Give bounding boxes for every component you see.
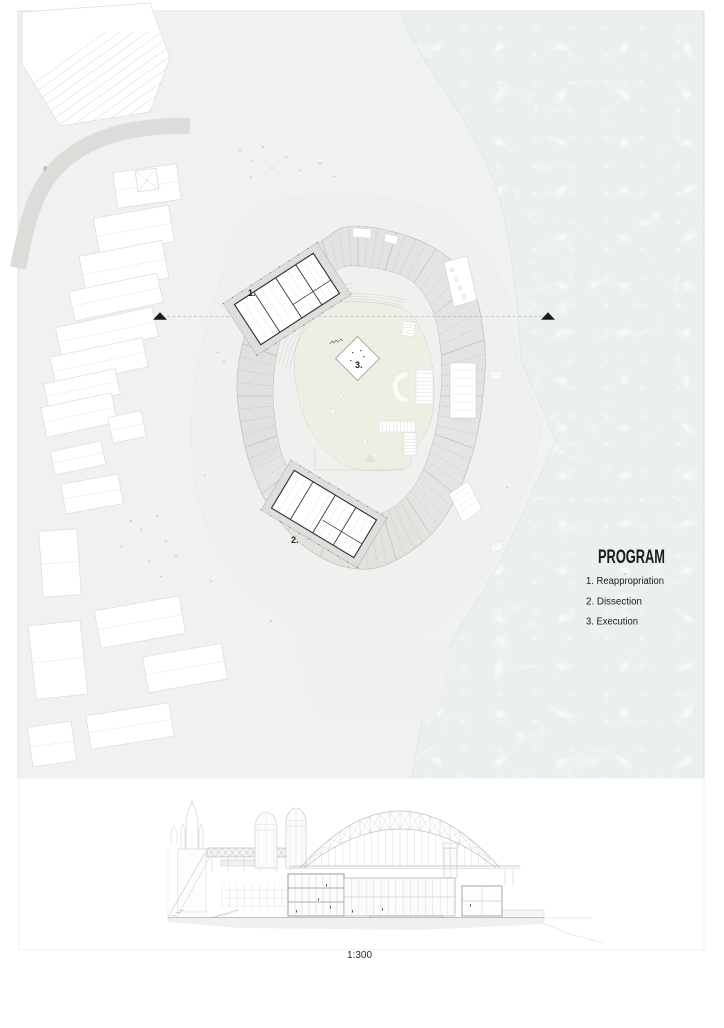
- svg-text:1. Reappropriation: 1. Reappropriation: [586, 576, 664, 587]
- svg-text:PROGRAM: PROGRAM: [598, 547, 665, 568]
- svg-text:1:300: 1:300: [347, 950, 372, 961]
- svg-text:2.: 2.: [291, 535, 299, 545]
- svg-text:3. Execution: 3. Execution: [586, 617, 638, 628]
- svg-text:2. Dissection: 2. Dissection: [586, 597, 642, 608]
- svg-text:1.: 1.: [248, 288, 256, 298]
- svg-text:3.: 3.: [355, 360, 363, 370]
